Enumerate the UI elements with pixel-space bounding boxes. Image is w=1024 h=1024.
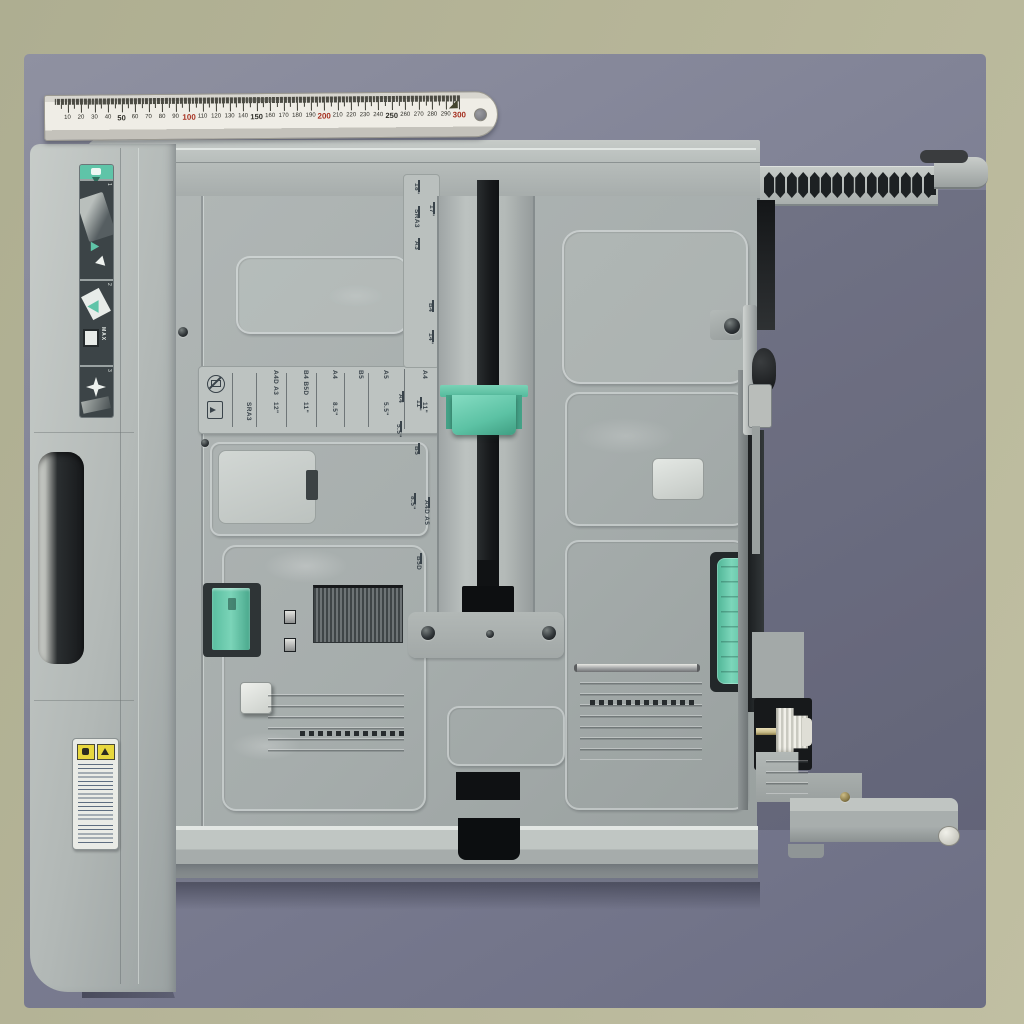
length-scale-top-strip: 18"17"SRA3A3B414" bbox=[403, 174, 440, 368]
hex-hole-row bbox=[760, 167, 938, 204]
scale-tick bbox=[432, 300, 434, 312]
scale-tick bbox=[418, 180, 420, 192]
floor-screw bbox=[178, 327, 188, 337]
scale-tick bbox=[418, 443, 420, 454]
scale-tick bbox=[428, 497, 430, 508]
no-envelope-icon bbox=[207, 375, 225, 393]
friction-pad bbox=[313, 585, 403, 643]
label-step-panel-3: 3 bbox=[80, 367, 113, 417]
paper-size-inch-label: 5.5" bbox=[377, 402, 388, 430]
paper-size-inch-label: 11" bbox=[297, 402, 308, 430]
center-slot bbox=[477, 180, 499, 578]
hex-rack-rail bbox=[760, 166, 938, 206]
floor-screw bbox=[201, 439, 209, 447]
label-step-panel-1: 1 bbox=[80, 181, 113, 279]
plate-screw bbox=[542, 626, 556, 640]
paper-stack-illustration bbox=[83, 329, 99, 347]
hex-hole bbox=[764, 172, 774, 198]
panel-seam-vertical-2 bbox=[138, 148, 139, 984]
scale-tick bbox=[433, 202, 435, 214]
center-clip-prong-right bbox=[516, 395, 522, 429]
center-green-clip[interactable] bbox=[452, 395, 516, 435]
right-dark-band-top bbox=[757, 200, 775, 330]
load-paper-icon bbox=[207, 401, 223, 419]
hex-hole bbox=[878, 172, 888, 198]
hex-hole bbox=[912, 172, 922, 198]
right-guide-metal-rod bbox=[574, 664, 700, 672]
caution-fine-print bbox=[78, 764, 113, 820]
green-clip-icon bbox=[91, 168, 101, 175]
paper-size-label: B5 bbox=[352, 370, 363, 400]
hex-hole bbox=[810, 172, 820, 198]
scale-tick bbox=[420, 553, 422, 564]
max-fill-text: MAX bbox=[100, 327, 106, 341]
hex-hole bbox=[775, 172, 785, 198]
contact-pin bbox=[284, 610, 296, 624]
step-number: 3 bbox=[106, 369, 112, 372]
frame-ridge-highlight bbox=[92, 148, 756, 150]
plate-screw-small bbox=[486, 630, 494, 638]
bottom-rail-dark-edge bbox=[174, 864, 758, 884]
warning-box-left bbox=[77, 744, 95, 760]
hex-hole bbox=[787, 172, 797, 198]
tray-edge-illustration bbox=[81, 396, 111, 414]
paper-size-label: A5 bbox=[377, 370, 388, 400]
left-guide-white-panel bbox=[218, 450, 316, 524]
ruler-number: 300 bbox=[450, 111, 468, 119]
size-cell-divider bbox=[344, 373, 345, 427]
paper-size-label: A4D A3 bbox=[267, 370, 278, 400]
scale-tick bbox=[418, 238, 420, 250]
caution-fine-print-2 bbox=[78, 825, 113, 843]
ruler-left-fine-text bbox=[84, 100, 110, 104]
right-guide-white-tab bbox=[652, 458, 704, 500]
scale-tick bbox=[400, 421, 402, 432]
label-step-panel-2: 2 MAX bbox=[80, 281, 113, 365]
size-cell-divider bbox=[368, 373, 369, 427]
panel-seam-vertical bbox=[120, 148, 121, 984]
hex-hole bbox=[855, 172, 865, 198]
ruler-tick-mark bbox=[459, 95, 460, 109]
paper-arrow bbox=[210, 407, 216, 413]
paper-size-inch-label: 12" bbox=[267, 402, 278, 430]
bottom-right-rail bbox=[790, 798, 958, 842]
ruler-hanging-hole bbox=[474, 108, 487, 121]
step-number: 1 bbox=[106, 183, 112, 186]
hex-hole bbox=[867, 172, 877, 198]
left-guide-notch bbox=[306, 470, 318, 500]
hex-hole bbox=[844, 172, 854, 198]
scale-tick bbox=[420, 397, 422, 408]
paper-size-label: A4 bbox=[326, 370, 337, 400]
rail-foot bbox=[788, 844, 824, 858]
plate-screw bbox=[421, 626, 435, 640]
right-guide-scale-dashes bbox=[590, 700, 696, 705]
tray-handle-recess[interactable] bbox=[38, 452, 84, 664]
right-guide-ridges bbox=[580, 682, 702, 760]
hex-hole bbox=[832, 172, 842, 198]
tray-front-panel: 1 2 MAX 3 bbox=[30, 144, 176, 992]
frame-ridge-line bbox=[92, 162, 760, 163]
emboss-panel-top-left bbox=[236, 256, 408, 334]
scale-tick bbox=[432, 330, 434, 342]
emboss-bottom-center bbox=[447, 706, 565, 766]
teal-arrow-icon bbox=[91, 242, 99, 252]
left-clip-slot bbox=[228, 598, 236, 610]
size-cell-divider bbox=[256, 373, 257, 427]
paper-size-inch-label: 8.5" bbox=[326, 402, 337, 430]
left-guide-ridges bbox=[268, 694, 404, 758]
scale-tick bbox=[402, 391, 404, 402]
rail-dark-cap bbox=[920, 150, 968, 163]
loading-instruction-label: 1 2 MAX 3 bbox=[79, 164, 114, 418]
photo-scene: SRA3A4D A312"B4 B5D11"A48.5"B5A55.5"A411… bbox=[0, 0, 1024, 1024]
size-cell-divider bbox=[286, 373, 287, 427]
emboss-panel-top-right bbox=[562, 230, 748, 384]
bracket-ridges bbox=[766, 760, 808, 794]
rail-screw bbox=[840, 792, 850, 802]
warning-triangle-icon bbox=[101, 748, 109, 755]
teal-load-arrow-icon bbox=[87, 300, 98, 313]
slider-block bbox=[748, 384, 772, 428]
thin-link-rod bbox=[752, 426, 760, 554]
rail-end-roller bbox=[938, 826, 960, 846]
size-cell-divider bbox=[232, 373, 233, 427]
star-burst-illustration bbox=[86, 377, 106, 397]
hex-hole bbox=[821, 172, 831, 198]
warning-box-right bbox=[97, 744, 115, 760]
scale-tick bbox=[418, 206, 420, 218]
ruler-center-fine-text bbox=[244, 98, 274, 102]
panel-seam-horizontal bbox=[34, 432, 134, 433]
bottom-black-opening bbox=[456, 772, 520, 800]
size-cell-divider bbox=[316, 373, 317, 427]
contact-pin bbox=[284, 638, 296, 652]
tray-illustration-wedge bbox=[79, 192, 114, 242]
caution-label bbox=[72, 738, 119, 850]
hex-hole bbox=[798, 172, 808, 198]
bottom-black-tab bbox=[458, 818, 520, 860]
right-rail-edge bbox=[738, 370, 748, 810]
white-arrow-icon bbox=[95, 256, 109, 270]
paper-size-inch-label: SRA3 bbox=[240, 402, 251, 430]
bracket-screw bbox=[724, 318, 740, 334]
paper-size-label: B4 B5D bbox=[297, 370, 308, 400]
step-number: 2 bbox=[106, 283, 112, 286]
steel-ruler[interactable]: 1020304050607080901001101201301401501601… bbox=[44, 91, 498, 141]
tray-cast-shadow bbox=[95, 882, 760, 910]
left-guide-scale-dashes bbox=[300, 731, 404, 736]
hex-hole bbox=[901, 172, 911, 198]
hand-pinch-icon bbox=[82, 748, 89, 755]
length-scale-center-labels: A411"5.5"B58.5"A4D A5B5D bbox=[390, 388, 436, 580]
label-header-band bbox=[80, 165, 113, 179]
knob-end-cap bbox=[802, 718, 812, 746]
knob-support-block bbox=[752, 632, 804, 698]
panel-seam-horizontal-2 bbox=[34, 700, 134, 701]
hex-hole bbox=[889, 172, 899, 198]
knob-shaft bbox=[756, 728, 778, 735]
scale-tick bbox=[414, 493, 416, 504]
